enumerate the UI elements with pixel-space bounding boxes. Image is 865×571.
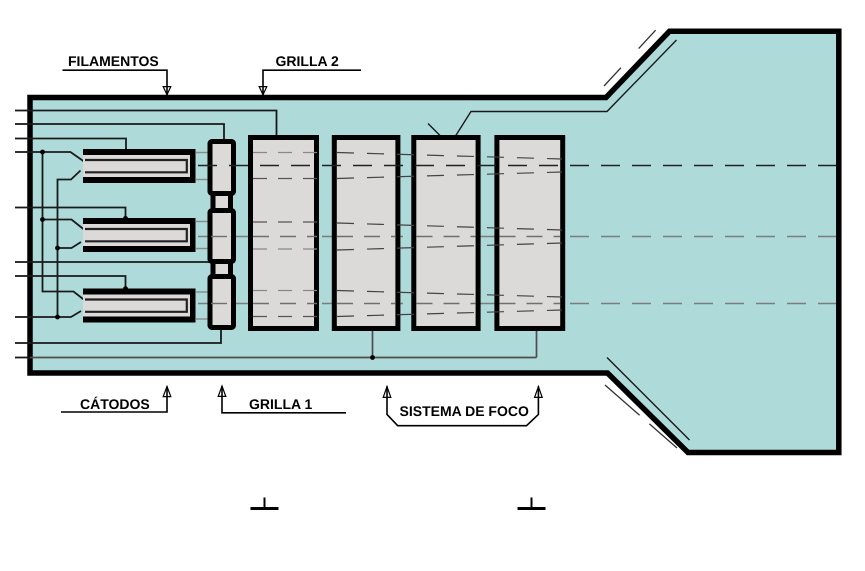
svg-text:CÁTODOS: CÁTODOS (80, 396, 150, 412)
svg-text:FILAMENTOS: FILAMENTOS (68, 53, 159, 69)
svg-text:GRILLA 1: GRILLA 1 (249, 396, 312, 412)
svg-text:GRILLA 2: GRILLA 2 (276, 53, 339, 69)
svg-text:SISTEMA DE FOCO: SISTEMA DE FOCO (400, 403, 529, 419)
